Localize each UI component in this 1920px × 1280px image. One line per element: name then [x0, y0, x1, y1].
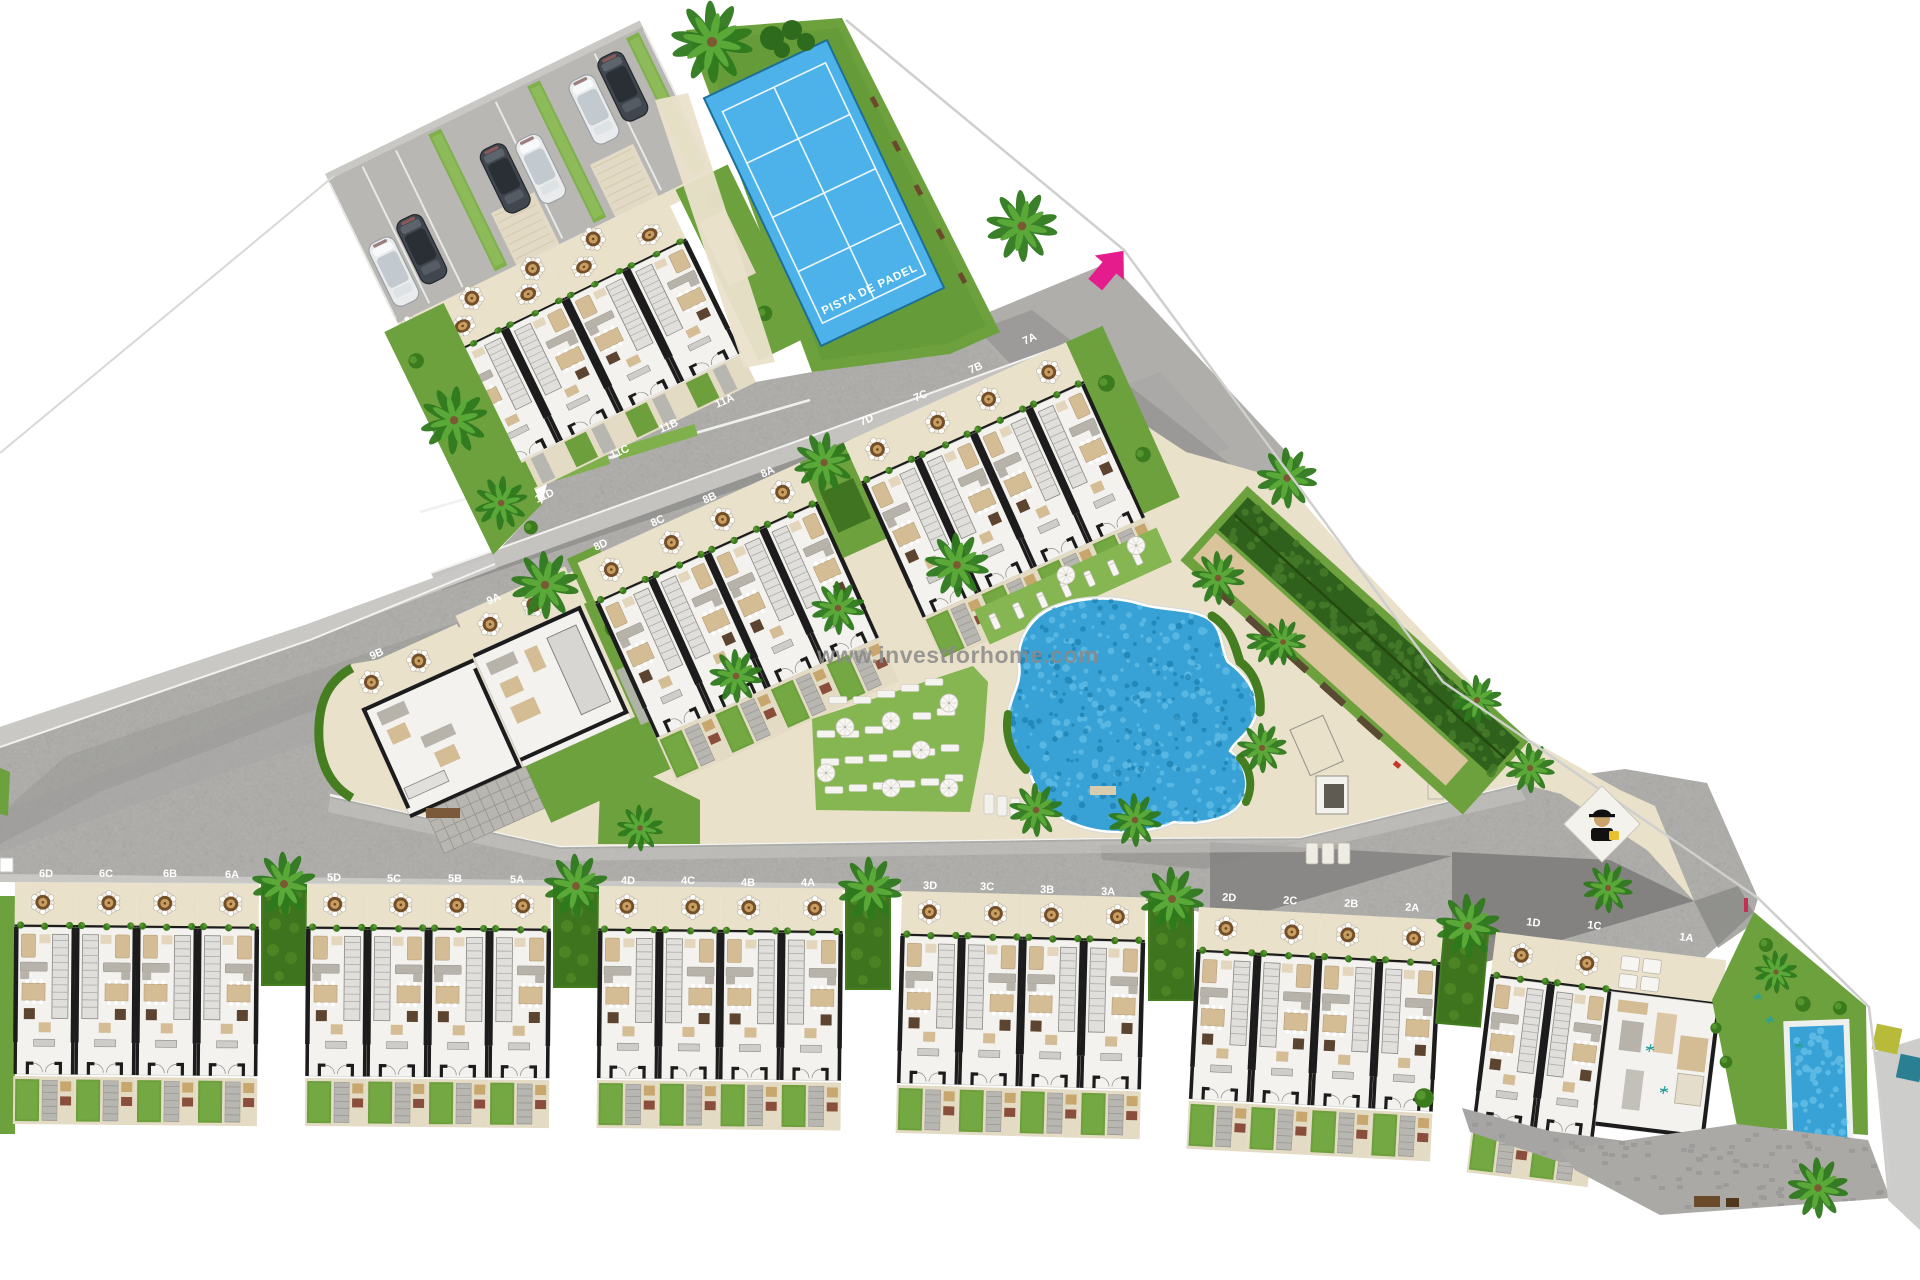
svg-text:5A: 5A	[510, 874, 524, 886]
svg-text:2C: 2C	[1283, 895, 1298, 908]
svg-text:2D: 2D	[1222, 892, 1237, 905]
svg-text:6D: 6D	[39, 868, 53, 880]
svg-text:4A: 4A	[801, 877, 815, 889]
svg-text:6A: 6A	[225, 869, 239, 881]
svg-text:6B: 6B	[163, 868, 177, 880]
svg-text:5D: 5D	[327, 872, 341, 884]
svg-text:1D: 1D	[1526, 916, 1541, 930]
svg-text:5C: 5C	[387, 873, 401, 885]
svg-text:3A: 3A	[1101, 886, 1115, 898]
svg-text:6C: 6C	[99, 868, 113, 880]
svg-text:1C: 1C	[1587, 919, 1602, 933]
svg-text:3C: 3C	[980, 881, 994, 893]
svg-text:4B: 4B	[741, 877, 755, 889]
svg-text:4D: 4D	[621, 875, 635, 887]
svg-text:www.investforhome.com: www.investforhome.com	[816, 642, 1099, 668]
svg-text:3D: 3D	[923, 880, 937, 892]
svg-text:1A: 1A	[1679, 931, 1694, 945]
svg-text:5B: 5B	[448, 873, 462, 885]
svg-text:3B: 3B	[1040, 884, 1054, 896]
svg-text:2B: 2B	[1344, 898, 1359, 911]
svg-text:2A: 2A	[1405, 902, 1420, 915]
svg-text:4C: 4C	[681, 875, 695, 887]
